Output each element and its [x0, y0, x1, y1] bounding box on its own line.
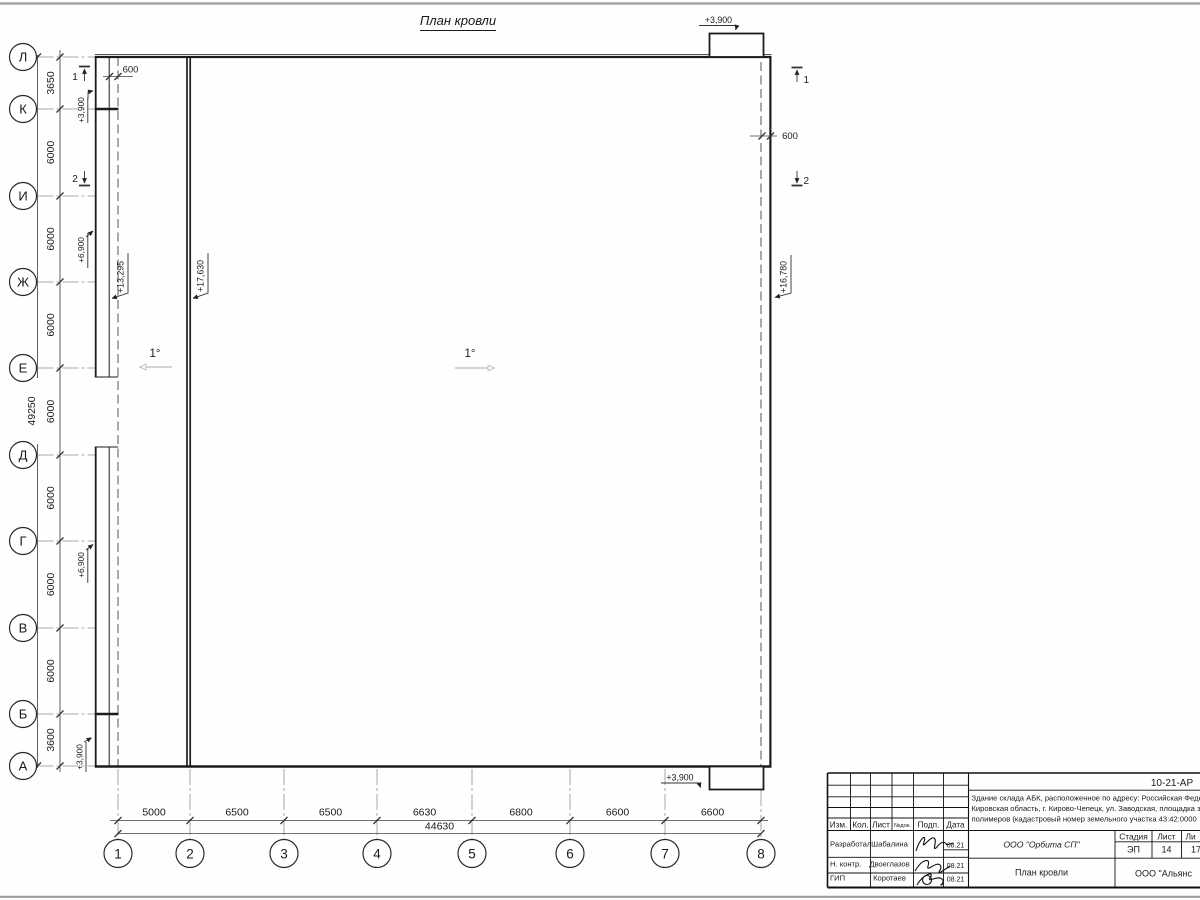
elevation-abk-roof: +13,295 [116, 261, 126, 293]
design-company: ООО "Орбита СП" [1003, 840, 1080, 850]
roof-outline [95, 34, 772, 790]
dim-label: 6000 [45, 227, 57, 251]
col-axis-label: 3 [280, 847, 288, 862]
sig-role: Н. контр. [830, 860, 861, 869]
row-dimension-labels: 3650 6000 6000 6000 6000 6000 6000 6000 … [45, 71, 57, 752]
col-axis-label: 8 [757, 847, 765, 862]
elevation-parapet-a: +3,900 [75, 744, 85, 770]
drawing-title: План кровли [420, 13, 496, 28]
col-dimension-labels: 5000 6500 6500 6630 6800 6600 6600 [142, 807, 724, 819]
col-axis-bubbles: 1 2 3 4 5 6 7 8 [104, 840, 775, 868]
dim-label: 6600 [701, 807, 725, 819]
col-axis-label: 1 [114, 847, 122, 862]
section-label-1-right: 1 [804, 75, 810, 86]
dim-label: 6000 [45, 313, 57, 337]
dim-label: 5000 [142, 807, 166, 819]
dim-label: 3650 [45, 71, 57, 95]
offset-dim-right: 600 [782, 131, 798, 142]
row-axis-label: Ж [17, 275, 29, 290]
description-line: полимеров (кадастровый номер земельного … [972, 815, 1197, 824]
sig-date: 08.21 [947, 843, 965, 850]
elevation-wall-lower: +6,900 [76, 552, 86, 578]
sheet-edge-lines [0, 4, 1200, 897]
canopy-bottom [710, 767, 764, 790]
dimension-lines [38, 50, 778, 834]
dim-label: 6000 [45, 659, 57, 683]
sig-role: ГИП [830, 874, 845, 883]
col-axis-label: 6 [566, 847, 574, 862]
description-line: Здание склада АБК, расположенное по адре… [972, 794, 1200, 803]
row-axis-label: Г [19, 534, 26, 549]
dim-label: 3600 [45, 728, 57, 752]
elevation-parapet-k: +3,900 [76, 97, 86, 123]
col-axis-label: 5 [468, 847, 476, 862]
drawing-sheet: План кровли [0, 0, 1200, 900]
doc-number: 10-21-АР [1151, 778, 1194, 789]
sig-name: Коротаев [873, 874, 906, 883]
dim-label: 6500 [225, 807, 249, 819]
col-axis-label: 7 [661, 847, 669, 862]
project-description: Здание склада АБК, расположенное по адре… [972, 794, 1200, 824]
col-list: Лист [872, 821, 890, 830]
dim-label: 6000 [45, 573, 57, 597]
dimension-ticks [34, 54, 774, 838]
roof-plan-svg: План кровли [0, 0, 1200, 900]
section-label-2-right: 2 [804, 176, 810, 187]
slope-label-left: 1° [150, 348, 161, 360]
titleblock-sheet-name: План кровли [1015, 868, 1068, 878]
row-total-dimension: 49250 [26, 396, 38, 425]
client-company: ООО "Альянс [1135, 869, 1192, 879]
sig-date: 08.21 [947, 877, 965, 884]
row-axis-label: Д [19, 448, 28, 463]
stage-block: Стадия Лист Ли ЭП 14 17 [1119, 832, 1200, 855]
col-ndok: №док. [894, 823, 911, 829]
col-podp: Подп. [918, 821, 940, 830]
slope-marks: 1° 1° [140, 348, 494, 368]
sheets-total: 17 [1191, 845, 1200, 855]
elevation-wall-upper: +6,900 [76, 237, 86, 263]
stage-header-stadia: Стадия [1119, 832, 1148, 842]
dim-label: 6500 [319, 807, 343, 819]
sheet-number: 14 [1161, 845, 1171, 855]
elevation-warehouse-high: +17,630 [196, 260, 206, 292]
title-block: Изм. Кол. Лист №док. Подп. Дата Разработ… [828, 773, 1200, 888]
stage-value: ЭП [1127, 845, 1140, 855]
elevation-canopy-bottom: +3,900 [666, 773, 693, 783]
col-izm: Изм. [830, 821, 848, 830]
row-axis-label: В [19, 621, 28, 636]
elevation-canopy-top: +3,900 [705, 15, 732, 25]
dim-label: 6800 [509, 807, 533, 819]
elevation-warehouse-low: +16,780 [779, 261, 789, 293]
sig-name: Двоеглазов [869, 860, 909, 869]
slope-label-right: 1° [465, 348, 476, 360]
dim-label: 6000 [45, 400, 57, 424]
row-axis-label: Б [19, 707, 28, 722]
section-mark-labels: 1 2 1 2 [72, 72, 809, 187]
signature-rows: Разработал Шабалина 08.21 Н. контр. Двое… [830, 840, 964, 884]
dim-label: 6600 [606, 807, 630, 819]
dim-label: 6000 [45, 141, 57, 165]
col-data: Дата [946, 821, 965, 830]
row-axis-label: Е [19, 361, 28, 376]
sig-role: Разработал [830, 840, 871, 849]
section-label-1-left: 1 [72, 72, 78, 83]
revision-header: Изм. Кол. Лист №док. Подп. Дата [830, 821, 965, 830]
stage-header-listov: Ли [1186, 832, 1196, 842]
section-label-2-left: 2 [72, 174, 78, 185]
description-line: Кировская область, г. Кирово-Чепецк, ул.… [972, 804, 1200, 813]
dim-label: 6000 [45, 486, 57, 510]
interior-dashed-axes [118, 35, 761, 790]
row-axis-label: И [18, 189, 27, 204]
row-axis-label: А [19, 759, 28, 774]
sig-name: Шабалина [871, 840, 908, 849]
col-kol: Кол. [852, 821, 868, 830]
elevation-marks: +3,900 +6,900 +6,900 +3,900 +13,295 +17,… [75, 15, 792, 788]
row-axis-label: К [19, 102, 27, 117]
canopy-top [710, 34, 764, 58]
col-axis-label: 2 [186, 847, 194, 862]
offset-dim-left: 600 [123, 65, 139, 76]
stage-header-list: Лист [1157, 832, 1175, 842]
col-axis-label: 4 [373, 847, 381, 862]
col-total-dimension: 44630 [425, 821, 454, 833]
row-axis-label: Л [19, 50, 28, 65]
dim-label: 6630 [413, 807, 437, 819]
